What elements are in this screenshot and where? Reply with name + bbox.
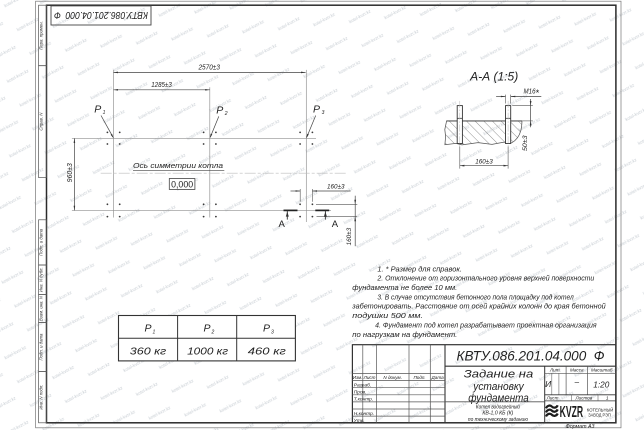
svg-text:0,000: 0,000 (171, 179, 193, 189)
svg-text:Т.контр.: Т.контр. (354, 397, 373, 403)
svg-text:Подп.: Подп. (413, 375, 425, 380)
svg-text:3: 3 (271, 329, 274, 335)
svg-text:Справ. N: Справ. N (39, 112, 44, 131)
svg-text:2: 2 (211, 329, 215, 335)
svg-text:забетонировать. Расстояние от: забетонировать. Расстояние от осей крайн… (351, 302, 605, 311)
svg-text:Р: Р (145, 323, 152, 335)
svg-text:Р: Р (94, 104, 101, 116)
svg-text:А: А (279, 219, 286, 230)
svg-text:Взам. инв. N: Взам. инв. N (39, 295, 44, 321)
svg-text:Перв. примен.: Перв. примен. (39, 21, 44, 50)
svg-text:Пров.: Пров. (354, 389, 367, 395)
svg-text:по техническому заданию: по техническому заданию (468, 417, 528, 423)
svg-text:1: 1 (606, 396, 609, 402)
svg-text:Разраб.: Разраб. (354, 382, 371, 388)
svg-text:3. В случае отсутствия бетонно: 3. В случае отсутствия бетонного пола пл… (377, 292, 574, 301)
svg-text:KVZR: KVZR (560, 404, 584, 421)
svg-text:3: 3 (322, 110, 325, 116)
svg-text:Р: Р (216, 105, 223, 117)
svg-text:2. Отклонение от горизонтально: 2. Отклонение от горизонтального уровня … (376, 274, 594, 283)
svg-text:Масса: Масса (570, 368, 584, 373)
svg-text:М16: М16 (524, 89, 536, 96)
svg-text:Листов: Листов (575, 396, 593, 401)
svg-text:фундамента: фундамента (468, 393, 529, 405)
svg-text:160±3: 160±3 (327, 183, 345, 190)
svg-text:Лист: Лист (363, 375, 376, 380)
svg-text:Подп. и дата: Подп. и дата (39, 333, 44, 361)
svg-text:Масштаб: Масштаб (591, 368, 613, 373)
svg-text:50±3: 50±3 (522, 135, 529, 151)
svg-text:Инв. N дубл.: Инв. N дубл. (39, 267, 44, 292)
svg-text:КВТУ.086.201.04.000 Ф: КВТУ.086.201.04.000 Ф (54, 9, 148, 21)
svg-text:1285±3: 1285±3 (151, 80, 172, 89)
svg-text:Р: Р (204, 323, 211, 335)
svg-text:КОТЕЛЬНЫЙ: КОТЕЛЬНЫЙ (587, 405, 614, 412)
svg-text:Лист: Лист (546, 396, 559, 401)
svg-text:Р: Р (313, 104, 320, 116)
svg-text:КВТУ.086.201.04.000 Ф: КВТУ.086.201.04.000 Ф (457, 347, 605, 363)
svg-text:Лит.: Лит. (549, 368, 561, 373)
svg-text:установку: установку (472, 381, 524, 393)
svg-text:ЗАВОД РЭП: ЗАВОД РЭП (588, 413, 611, 418)
svg-text:по нагрузкам на фундамент.: по нагрузкам на фундамент. (352, 330, 457, 339)
svg-text:N докум.: N докум. (383, 375, 402, 380)
svg-text:А-А (1:5): А-А (1:5) (469, 71, 518, 83)
svg-text:4. Фундамент под котел разраба: 4. Фундамент под котел разрабатывает про… (375, 320, 597, 329)
svg-text:Подп. и дата: Подп. и дата (39, 228, 44, 256)
svg-text:Задание на: Задание на (464, 368, 534, 380)
svg-text:960±3: 960±3 (65, 163, 74, 182)
svg-text:160±3: 160±3 (475, 158, 493, 165)
svg-text:Р: Р (263, 323, 270, 335)
svg-text:подушки 500 мм.: подушки 500 мм. (352, 311, 423, 320)
svg-text:360 кг: 360 кг (130, 346, 167, 357)
svg-text:2570±3: 2570±3 (198, 63, 220, 72)
svg-text:–: – (575, 378, 580, 387)
svg-text:1: 1 (103, 110, 106, 116)
svg-text:2: 2 (224, 111, 228, 117)
svg-text:Дата: Дата (431, 375, 445, 380)
svg-text:1: 1 (153, 329, 156, 335)
svg-text:фундамента не более 10 мм.: фундамента не более 10 мм. (352, 283, 457, 292)
svg-text:Формат А3: Формат А3 (566, 424, 595, 430)
svg-text:Котел водогрейный: Котел водогрейный (476, 404, 520, 411)
svg-text:1:20: 1:20 (593, 380, 609, 390)
svg-text:Ось симметрии котла: Ось симметрии котла (133, 161, 223, 170)
svg-text:1. * Размер для справок.: 1. * Размер для справок. (377, 264, 462, 273)
svg-text:Н.контр.: Н.контр. (354, 411, 374, 417)
svg-text:Инв. N подл.: Инв. N подл. (39, 385, 44, 410)
svg-text:460 кг: 460 кг (248, 346, 286, 357)
svg-text:Утв.: Утв. (354, 418, 365, 424)
svg-text:И: И (545, 379, 552, 389)
svg-text:Изм.: Изм. (353, 375, 363, 380)
svg-text:КВ-1,0 КБ (К): КВ-1,0 КБ (К) (482, 411, 513, 417)
svg-text:160±3: 160±3 (346, 228, 353, 246)
svg-text:1000 кг: 1000 кг (187, 346, 228, 357)
svg-text:А: А (332, 219, 339, 230)
svg-text:*: * (536, 88, 540, 98)
